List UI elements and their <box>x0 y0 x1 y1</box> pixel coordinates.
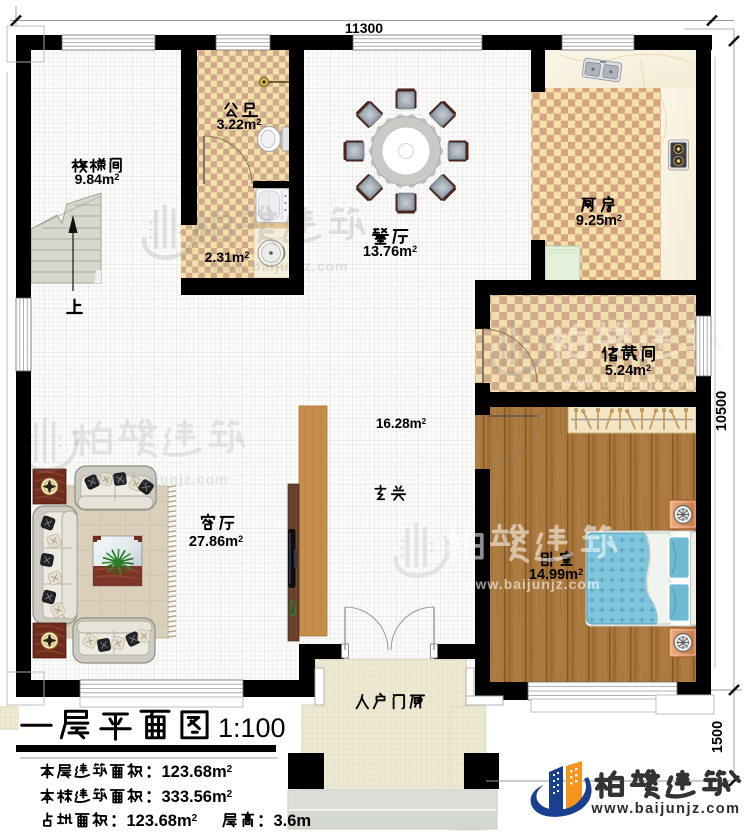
svg-text:：123.68m2: ：123.68m2 <box>110 812 214 830</box>
svg-text:9.25m2: 9.25m2 <box>576 213 622 229</box>
svg-text:16.28m2: 16.28m2 <box>376 416 427 431</box>
svg-text:2.31m2: 2.31m2 <box>205 249 250 265</box>
svg-text:10500: 10500 <box>714 391 730 431</box>
svg-text:13.76m2: 13.76m2 <box>363 244 417 260</box>
svg-text:www.baijunjz.com: www.baijunjz.com <box>590 801 740 817</box>
svg-text:1500: 1500 <box>710 721 726 753</box>
svg-text:：123.68m2: ：123.68m2 <box>145 763 233 781</box>
svg-text:1:100: 1:100 <box>218 713 286 743</box>
svg-text:27.86m2: 27.86m2 <box>189 534 243 550</box>
svg-text:5.24m2: 5.24m2 <box>605 363 651 379</box>
svg-text:：3.6m: ：3.6m <box>257 812 311 830</box>
svg-text:www.baijunjz.com: www.baijunjz.com <box>91 471 229 487</box>
svg-text:：333.56m2: ：333.56m2 <box>145 788 233 806</box>
svg-text:www.baijunjz.com: www.baijunjz.com <box>463 576 601 592</box>
svg-text:11300: 11300 <box>345 20 383 36</box>
svg-text:3.22m2: 3.22m2 <box>217 116 262 132</box>
svg-text:9.84m2: 9.84m2 <box>75 171 120 187</box>
